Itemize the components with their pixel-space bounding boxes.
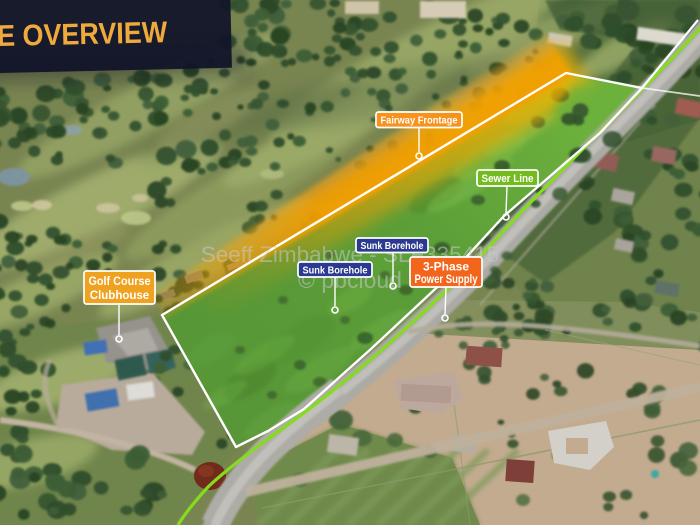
svg-text:Fairway Frontage: Fairway Frontage: [381, 115, 458, 127]
svg-text:Golf Course: Golf Course: [89, 276, 151, 288]
svg-text:Sunk Borehole: Sunk Borehole: [303, 264, 368, 276]
svg-text:Sunk Borehole: Sunk Borehole: [361, 240, 424, 252]
svg-text:E OVERVIEW: E OVERVIEW: [0, 16, 168, 53]
svg-text:Power Supply: Power Supply: [415, 272, 478, 286]
svg-text:Clubhouse: Clubhouse: [90, 290, 149, 302]
svg-text:Sewer Line: Sewer Line: [482, 173, 534, 185]
